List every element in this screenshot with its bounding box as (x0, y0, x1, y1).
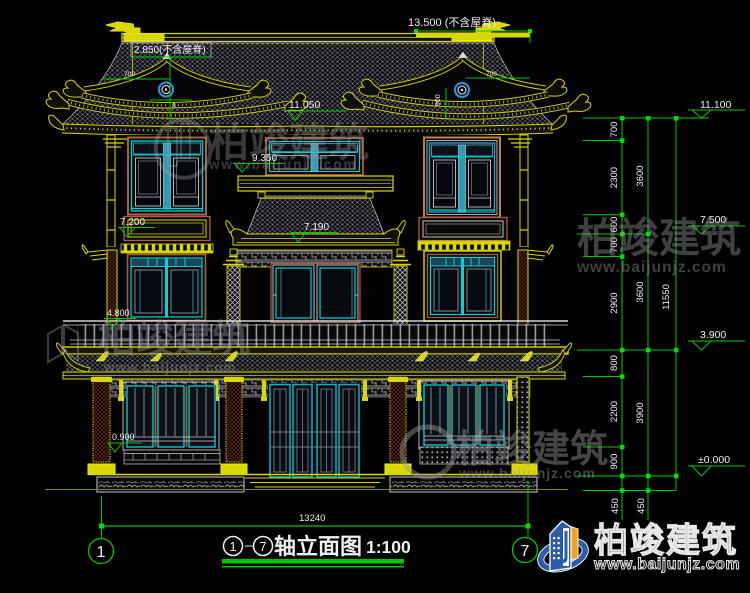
svg-text:1: 1 (229, 539, 236, 554)
svg-text:3600: 3600 (635, 281, 646, 302)
svg-text:2900: 2900 (609, 292, 620, 313)
svg-text:8: 8 (172, 103, 176, 110)
svg-text:www.baijunjz.com: www.baijunjz.com (208, 157, 358, 172)
svg-text:0.900: 0.900 (112, 432, 135, 442)
svg-text:2.850(不含屋脊): 2.850(不含屋脊) (134, 43, 206, 56)
svg-text:柏竣建筑: 柏竣建筑 (594, 521, 738, 560)
svg-text:3900: 3900 (635, 402, 646, 423)
svg-text:7: 7 (521, 543, 530, 560)
svg-text:3.900: 3.900 (700, 329, 726, 341)
svg-text:13.500 (不含屋脊): 13.500 (不含屋脊) (408, 15, 496, 29)
svg-text:800: 800 (609, 355, 620, 371)
svg-text:700: 700 (486, 71, 497, 78)
svg-text:2300: 2300 (609, 167, 620, 188)
svg-text:7.200: 7.200 (120, 217, 145, 228)
svg-text:2200: 2200 (609, 401, 620, 422)
svg-text:±0.000: ±0.000 (698, 454, 730, 466)
svg-text:11.100: 11.100 (700, 99, 731, 111)
svg-text:900: 900 (435, 94, 442, 106)
svg-text:柏竣建筑: 柏竣建筑 (98, 319, 250, 361)
svg-text:900: 900 (609, 454, 620, 470)
svg-text:7: 7 (259, 539, 266, 554)
svg-text:450: 450 (636, 498, 647, 514)
svg-text:www.baijunjz.com: www.baijunjz.com (576, 259, 727, 276)
svg-text:轴立面图: 轴立面图 (274, 534, 362, 559)
svg-text:1:100: 1:100 (366, 537, 411, 557)
svg-text:www.baijunjz.com: www.baijunjz.com (458, 465, 596, 481)
svg-text:1: 1 (97, 544, 106, 561)
svg-text:4.800: 4.800 (107, 308, 130, 318)
svg-text:7.190: 7.190 (304, 222, 329, 233)
svg-text:www.baijunjz.com: www.baijunjz.com (103, 360, 237, 375)
svg-text:700: 700 (124, 71, 135, 78)
svg-text:www.baijunjz.com: www.baijunjz.com (593, 556, 740, 573)
svg-text:13240: 13240 (299, 513, 325, 524)
svg-text:450: 450 (610, 498, 621, 514)
svg-text:柏竣建筑: 柏竣建筑 (577, 215, 741, 261)
svg-text:700: 700 (609, 122, 620, 138)
svg-text:11.050: 11.050 (289, 99, 320, 111)
svg-text:11550: 11550 (661, 284, 672, 310)
svg-text:3600: 3600 (635, 165, 646, 186)
